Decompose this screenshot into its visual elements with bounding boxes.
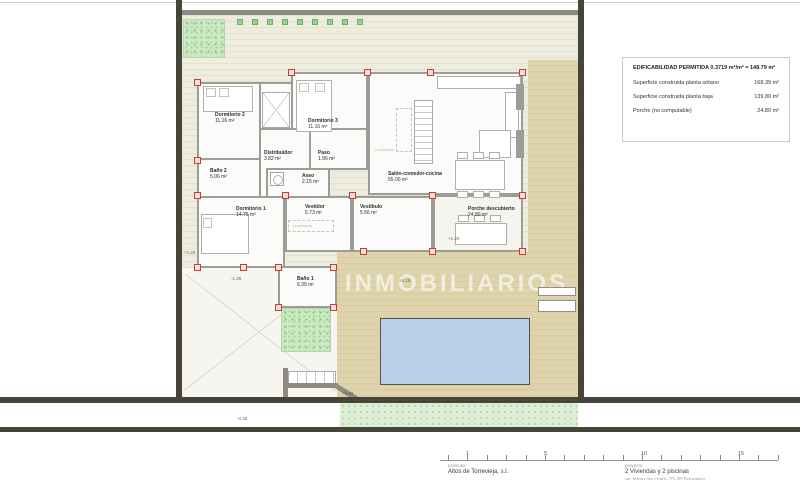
interior-stairs — [414, 100, 433, 164]
scale-tick — [720, 455, 721, 460]
column-marker — [330, 304, 337, 311]
plant-icon — [327, 19, 333, 25]
column-marker — [194, 157, 201, 164]
plant-icon — [237, 19, 243, 25]
promotor-value: Altos de Torrevieja, s.l. — [448, 469, 508, 475]
sunbed — [538, 287, 576, 296]
boundary-wall-street — [0, 397, 800, 403]
garden-wall — [283, 383, 338, 388]
pillow — [299, 83, 309, 92]
garden-top-left — [183, 19, 225, 58]
scale-tick — [642, 455, 643, 460]
scale-tick — [564, 455, 565, 460]
legend-title: EDIFICABILIDAD PERMITIDA 0.3719 m²/m² = … — [633, 65, 779, 71]
scale-tick — [603, 455, 604, 460]
chair — [489, 152, 500, 159]
column-marker — [429, 192, 436, 199]
boundary-wall-left — [176, 0, 182, 402]
sidewalk-edge — [0, 427, 800, 432]
scale-tick — [681, 455, 682, 460]
column-marker — [349, 192, 356, 199]
label-distribuidor: Distribuidor3.82 m² — [264, 150, 292, 163]
scale-tick — [545, 455, 546, 460]
floor-plan-sheet: INMOBILIARIOS Dormitorio 2 — [0, 0, 800, 480]
label-porche: Porche descubierto24.80 m² — [468, 206, 515, 219]
label-dormitorio-3: Dormitorio 311.16 m² — [308, 118, 338, 131]
level-marker: -1.28 — [231, 276, 241, 281]
kitchen-counter — [437, 76, 521, 89]
scale-tick — [506, 455, 507, 460]
label-dormitorio-2: Dormitorio 211.16 m² — [215, 112, 245, 125]
pillow — [315, 83, 325, 92]
level-marker: +0.58 — [342, 391, 353, 396]
column-marker — [330, 264, 337, 271]
label-paso: Paso1.96 m² — [318, 150, 335, 163]
legend-box: EDIFICABILIDAD PERMITIDA 0.3719 m²/m² = … — [622, 57, 790, 142]
scale-tick — [448, 455, 449, 460]
level-marker: +1.20 — [448, 236, 459, 241]
column-marker — [275, 264, 282, 271]
scale-tick — [739, 455, 740, 460]
column-marker — [519, 248, 526, 255]
proyecto-value: 2 Viviendas y 2 piscinas — [625, 469, 689, 475]
plant-icon — [267, 19, 273, 25]
legend-row: Superficie construida planta sótano 168.… — [633, 80, 779, 86]
chair — [473, 191, 484, 198]
label-vestibulo: Vestíbulo5.56 m² — [360, 204, 382, 217]
plant-icon — [297, 19, 303, 25]
column-marker — [194, 264, 201, 271]
column-marker — [360, 248, 367, 255]
column-marker — [429, 248, 436, 255]
scale-tick — [584, 455, 585, 460]
column-marker — [288, 69, 295, 76]
label-vestidor: Vestidor5.73 m² — [305, 204, 325, 217]
watermark: INMOBILIARIOS — [345, 270, 568, 298]
column-marker — [364, 69, 371, 76]
chair — [457, 191, 468, 198]
label-dormitorio-1: Dormitorio 114.75 m² — [236, 206, 266, 219]
column-marker — [240, 264, 247, 271]
plant-icon — [282, 19, 288, 25]
column-marker — [427, 69, 434, 76]
plant-icon — [357, 19, 363, 25]
scale-tick — [623, 455, 624, 460]
skylight-outline — [396, 108, 412, 152]
lucernario-label: Lucernario — [375, 147, 394, 152]
scale-tick — [758, 455, 759, 460]
plot-top-wall — [176, 10, 584, 15]
chair — [457, 152, 468, 159]
plant-icon — [252, 19, 258, 25]
scale-tick — [700, 455, 701, 460]
label-bano-1: Baño 16.39 m² — [297, 276, 314, 289]
promotor-label: promotor — [448, 463, 466, 468]
dining-table — [455, 160, 505, 190]
room-bano-2 — [197, 158, 261, 198]
column-marker — [275, 304, 282, 311]
washer-icon — [270, 172, 284, 186]
porch-table — [455, 223, 507, 245]
swimming-pool — [380, 318, 530, 385]
label-salon: Salón-comedor-cocina55.00 m² — [388, 171, 442, 184]
level-marker: -0.38 — [237, 416, 247, 421]
sunbed — [538, 300, 576, 312]
chair — [489, 191, 500, 198]
plant-icon — [312, 19, 318, 25]
legend-row: Porche (no computable) 24.80 m² — [633, 108, 779, 114]
level-marker: +1.15 — [399, 278, 410, 283]
level-marker: +1.20 — [184, 250, 195, 255]
legend-row: Superficie construida planta baja 139.80… — [633, 94, 779, 100]
lucernario-label: Lucernario — [293, 223, 312, 228]
pillow — [219, 88, 229, 97]
room-paso — [309, 128, 368, 170]
label-aseo: Aseo2.15 m² — [302, 173, 319, 186]
pillow — [206, 88, 216, 97]
column-marker — [282, 192, 289, 199]
scale-tick — [778, 455, 779, 460]
scale-tick — [661, 455, 662, 460]
pillow — [203, 218, 212, 228]
plant-icon — [342, 19, 348, 25]
column-marker — [194, 79, 201, 86]
scale-bar — [440, 460, 778, 461]
scale-tick — [487, 455, 488, 460]
stair-to-basement — [262, 92, 290, 128]
boundary-wall-right — [578, 0, 584, 402]
label-bano-2: Baño 25.06 m² — [210, 168, 227, 181]
wall-pier — [516, 84, 524, 110]
garden-patio — [281, 308, 331, 352]
sheet-top-line — [0, 2, 800, 3]
scale-tick — [526, 455, 527, 460]
green-verge — [340, 403, 578, 427]
scale-tick — [467, 455, 468, 460]
column-marker — [519, 192, 526, 199]
column-marker — [519, 69, 526, 76]
chair — [473, 152, 484, 159]
column-marker — [194, 192, 201, 199]
proyecto-label: proyecto — [625, 463, 642, 468]
wall-pier — [516, 130, 524, 158]
